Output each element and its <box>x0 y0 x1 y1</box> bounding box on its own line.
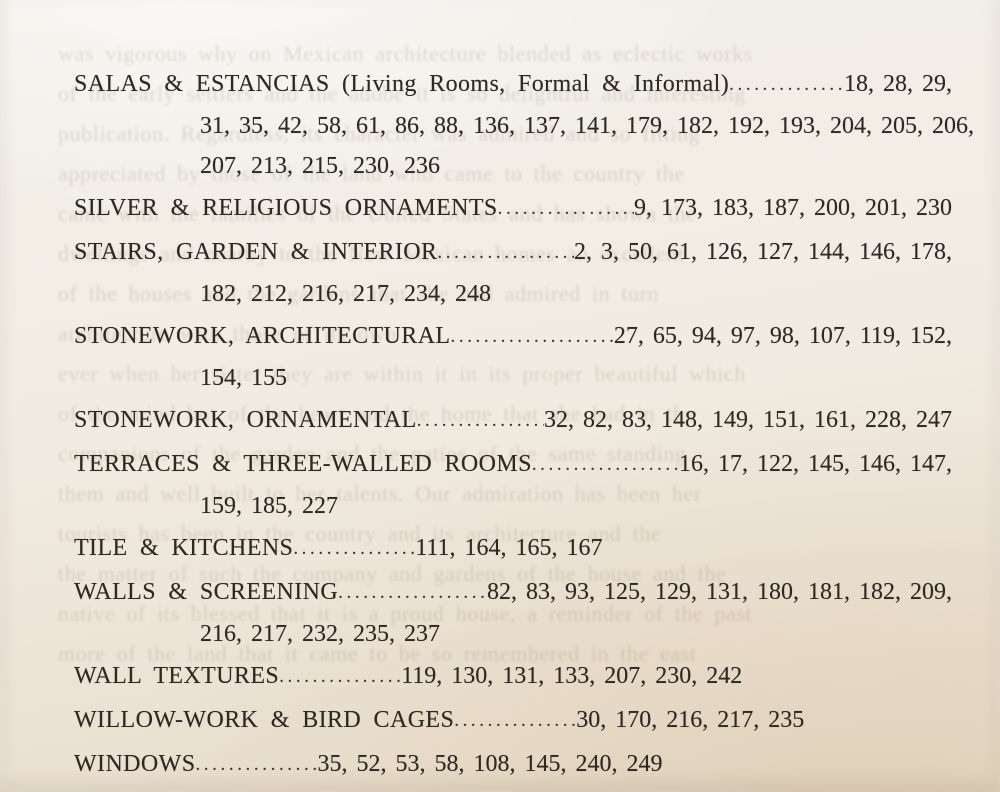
index-entry-first-line: STONEWORK, ORNAMENTAL...................… <box>74 400 952 442</box>
dot-leader: ........................................… <box>498 189 634 229</box>
index-entry-first-line: WALLS & SCREENING.......................… <box>74 572 952 614</box>
index-entry-continuation-line: 207, 213, 215, 230, 236 <box>200 146 952 186</box>
dot-leader: ........................................… <box>293 529 415 569</box>
index-entry-page-numbers: 16, 17, 122, 145, 146, 147, <box>679 444 952 484</box>
index-entry-first-line: SALAS & ESTANCIAS (Living Rooms, Formal … <box>74 64 952 106</box>
index-entry-label: SILVER & RELIGIOUS ORNAMENTS <box>74 188 498 228</box>
index-entry: WILLOW-WORK & BIRD CAGES................… <box>74 700 952 742</box>
index-entry-page-numbers: 111, 164, 165, 167 <box>415 528 602 568</box>
index-entry-label: SALAS & ESTANCIAS (Living Rooms, Formal … <box>74 64 729 104</box>
index-entry: TILE & KITCHENS.........................… <box>74 528 952 570</box>
index-entry-continuation-line: 159, 185, 227 <box>200 486 952 526</box>
dot-leader: ........................................… <box>729 65 844 105</box>
dot-leader: ........................................… <box>195 745 317 785</box>
index-entry-first-line: WINDOWS.................................… <box>74 744 952 786</box>
index-entry-label: WALLS & SCREENING <box>74 572 338 612</box>
index-entry-continuation-line: 154, 155 <box>200 358 952 398</box>
dot-leader: ........................................… <box>338 573 487 613</box>
index-entry-first-line: TILE & KITCHENS.........................… <box>74 528 952 570</box>
index-entry-first-line: TERRACES & THREE-WALLED ROOMS...........… <box>74 444 952 486</box>
dot-leader: ........................................… <box>437 233 574 273</box>
index-entry-page-numbers: 27, 65, 94, 97, 98, 107, 119, 152, <box>614 316 952 356</box>
index-entry-first-line: WALL TEXTURES...........................… <box>74 656 952 698</box>
index-entry-first-line: STAIRS, GARDEN & INTERIOR...............… <box>74 232 952 274</box>
index-entry: TERRACES & THREE-WALLED ROOMS...........… <box>74 444 952 526</box>
index-entry-page-numbers: 9, 173, 183, 187, 200, 201, 230 <box>634 188 952 228</box>
index-entry: WINDOWS.................................… <box>74 744 952 786</box>
index-entry: STAIRS, GARDEN & INTERIOR...............… <box>74 232 952 314</box>
index-entry-label: WINDOWS <box>74 744 195 784</box>
index-entry-page-numbers: 32, 82, 83, 148, 149, 151, 161, 228, 247 <box>544 400 952 440</box>
dot-leader: ........................................… <box>417 401 544 441</box>
index-entry-continuation-line: 31, 35, 42, 58, 61, 86, 88, 136, 137, 14… <box>200 106 952 146</box>
index-entry: WALLS & SCREENING.......................… <box>74 572 952 654</box>
index-entry-page-numbers: 35, 52, 53, 58, 108, 145, 240, 249 <box>317 744 662 784</box>
dot-leader: ........................................… <box>279 657 401 697</box>
index-entry-first-line: WILLOW-WORK & BIRD CAGES................… <box>74 700 952 742</box>
index-list: SALAS & ESTANCIAS (Living Rooms, Formal … <box>0 64 1000 788</box>
index-entry-first-line: STONEWORK, ARCHITECTURAL................… <box>74 316 952 358</box>
index-entry-continuation-line: 182, 212, 216, 217, 234, 248 <box>200 274 952 314</box>
index-entry-label: WILLOW-WORK & BIRD CAGES <box>74 700 454 740</box>
index-entry-label: TILE & KITCHENS <box>74 528 293 568</box>
index-entry-label: STONEWORK, ORNAMENTAL <box>74 400 417 440</box>
dot-leader: ........................................… <box>454 701 576 741</box>
index-entry: SILVER & RELIGIOUS ORNAMENTS............… <box>74 188 952 230</box>
index-entry-label: STAIRS, GARDEN & INTERIOR <box>74 232 437 272</box>
index-entry: STONEWORK, ORNAMENTAL...................… <box>74 400 952 442</box>
index-entry-page-numbers: 119, 130, 131, 133, 207, 230, 242 <box>401 656 742 696</box>
dot-leader: ........................................… <box>451 317 614 357</box>
index-entry-label: TERRACES & THREE-WALLED ROOMS <box>74 444 532 484</box>
index-entry: SALAS & ESTANCIAS (Living Rooms, Formal … <box>74 64 952 186</box>
dot-leader: ........................................… <box>532 445 679 485</box>
index-entry: WALL TEXTURES...........................… <box>74 656 952 698</box>
book-page: was vigorous why on Mexican architecture… <box>0 0 1000 792</box>
index-entry-page-numbers: 30, 170, 216, 217, 235 <box>576 700 804 740</box>
index-entry-continuation-line: 216, 217, 232, 235, 237 <box>200 614 952 654</box>
index-entry-page-numbers: 2, 3, 50, 61, 126, 127, 144, 146, 178, <box>574 232 952 272</box>
index-entry: STONEWORK, ARCHITECTURAL................… <box>74 316 952 398</box>
index-entry-page-numbers: 18, 28, 29, <box>844 64 952 104</box>
index-entry-first-line: SILVER & RELIGIOUS ORNAMENTS............… <box>74 188 952 230</box>
index-entry-label: STONEWORK, ARCHITECTURAL <box>74 316 451 356</box>
index-entry-label: WALL TEXTURES <box>74 656 279 696</box>
index-entry-page-numbers: 82, 83, 93, 125, 129, 131, 180, 181, 182… <box>487 572 952 612</box>
